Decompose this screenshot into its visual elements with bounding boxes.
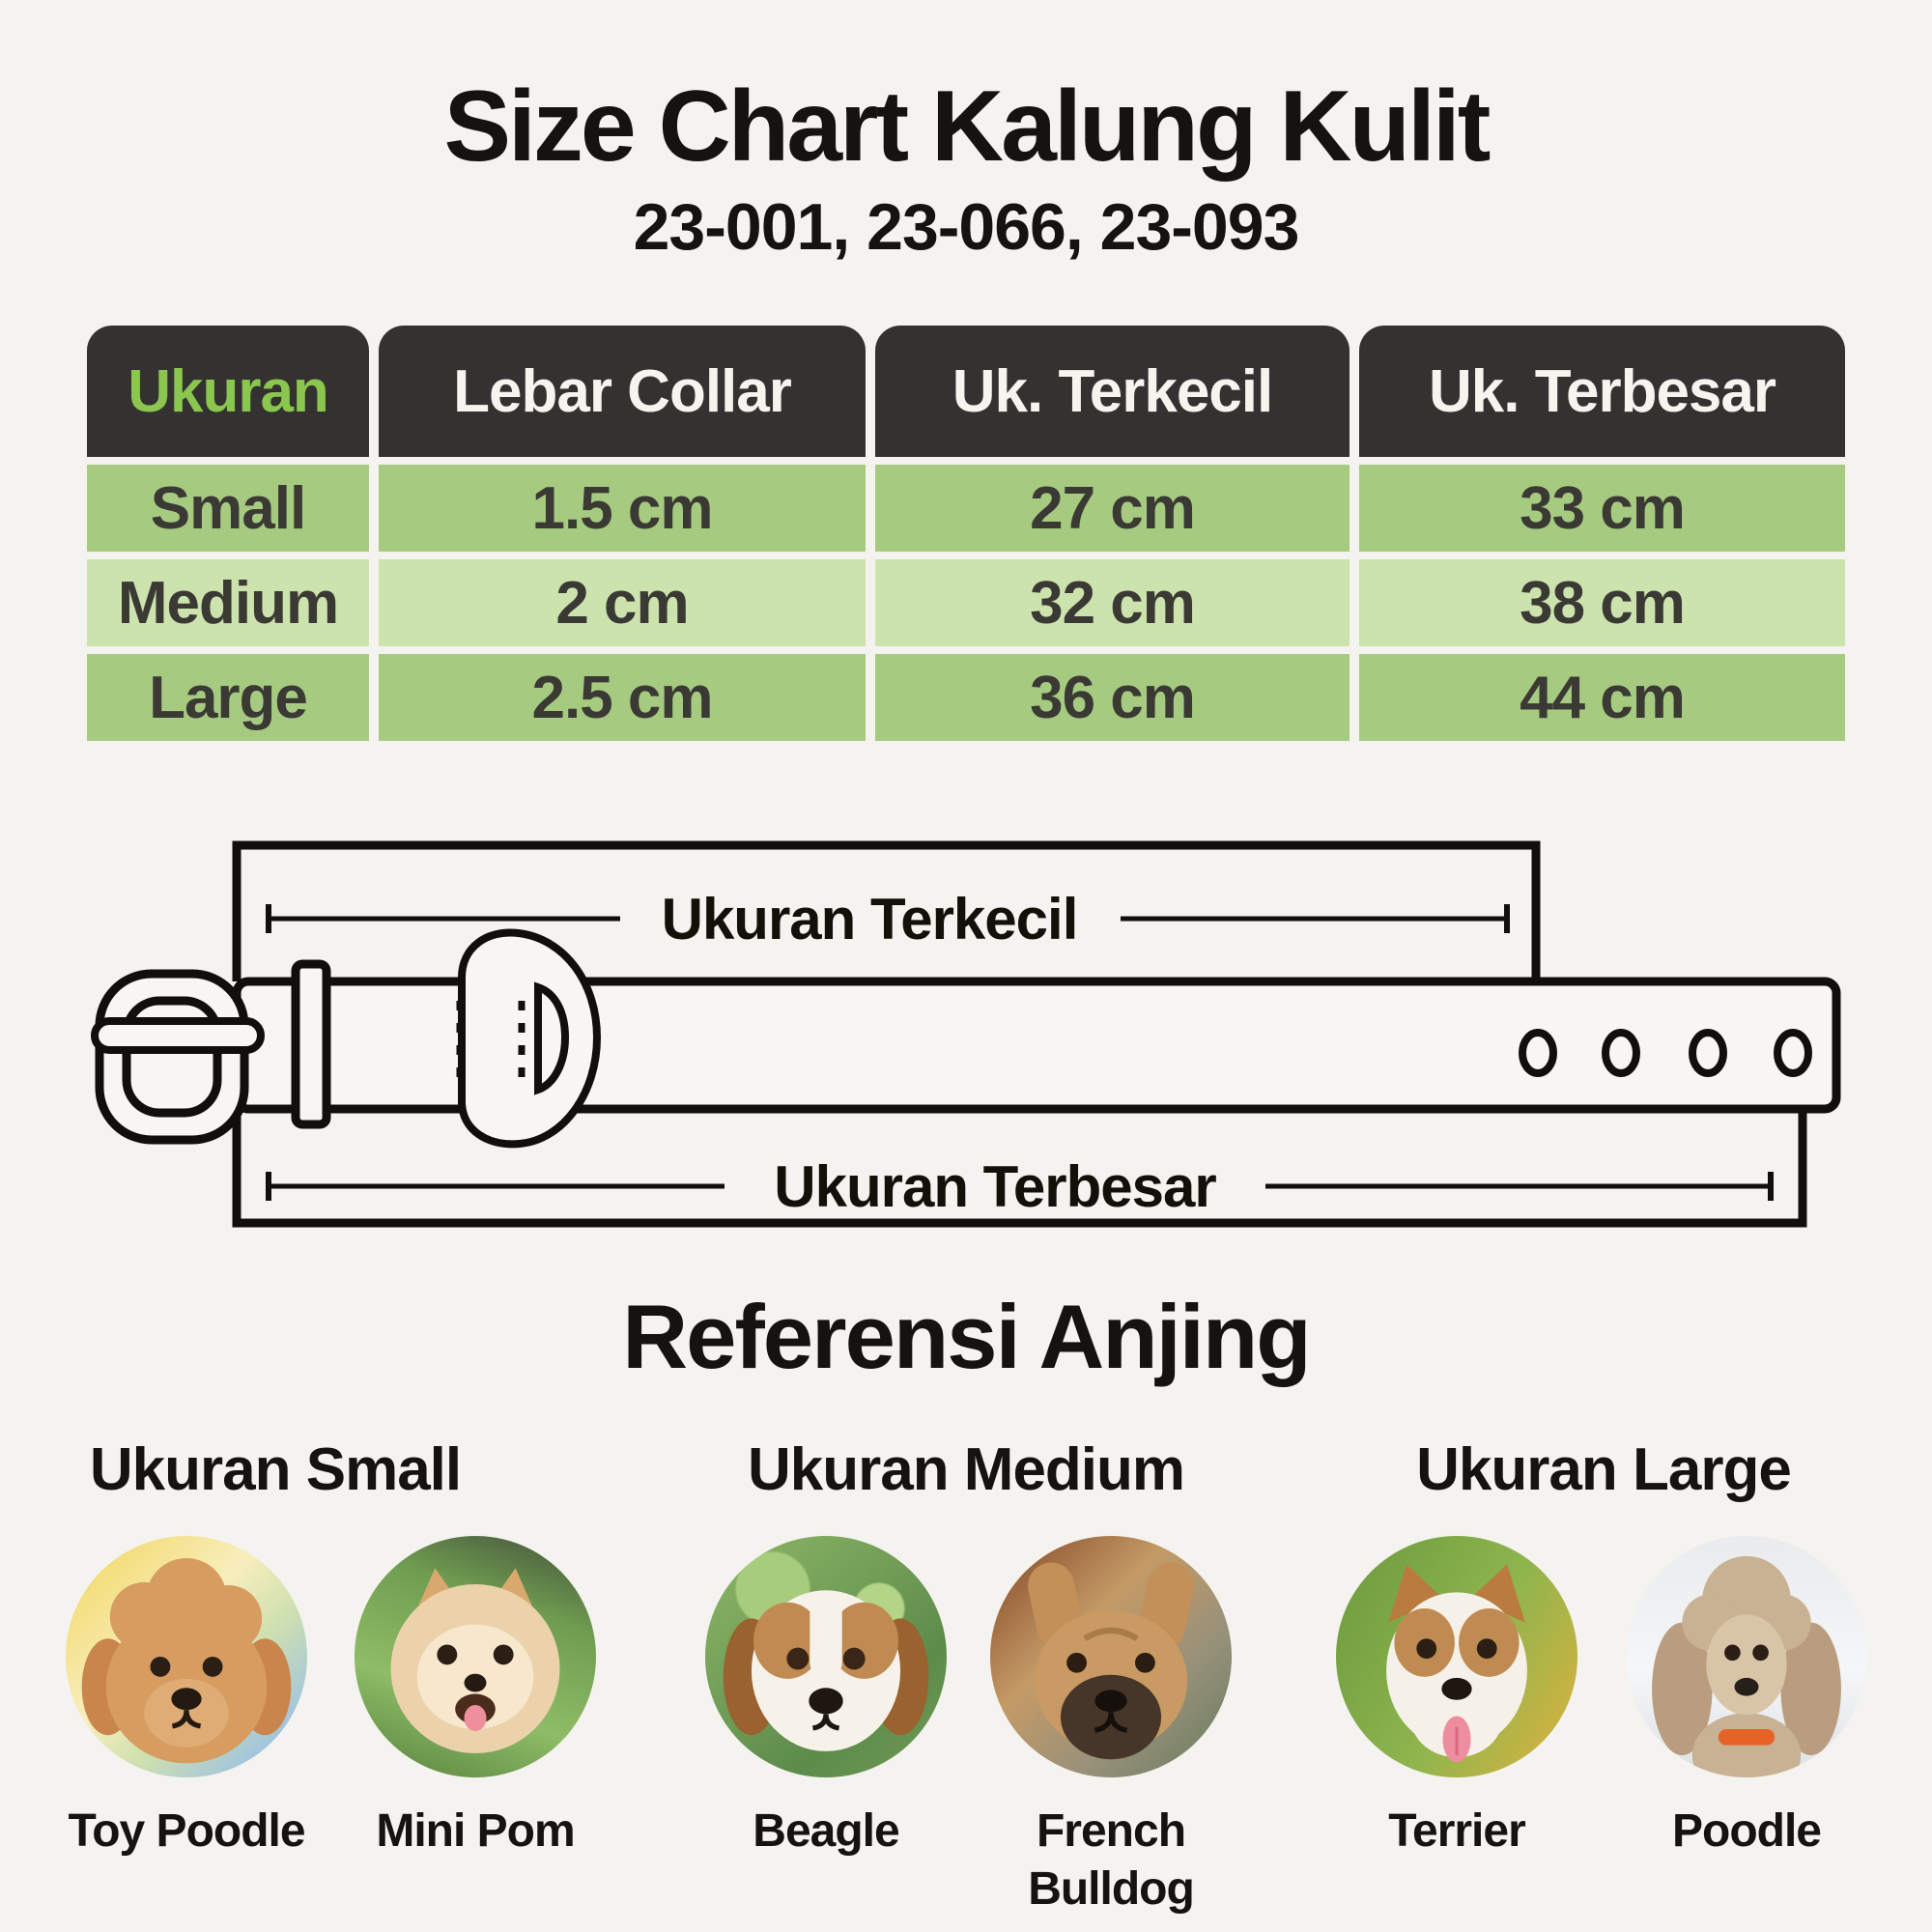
toy-poodle-illustration <box>66 1536 307 1777</box>
measure-smallest-label: Ukuran Terkecil <box>662 887 1078 952</box>
dog-label-french-bulldog: French Bulldog <box>995 1803 1227 1918</box>
cell-large-lebar: 2.5 cm <box>379 654 866 741</box>
measure-largest-label: Ukuran Terbesar <box>774 1154 1216 1219</box>
mini-pom-illustration <box>355 1536 596 1777</box>
cell-small-ukuran: Small <box>87 465 369 552</box>
buckle-prong <box>95 1021 261 1050</box>
group-label-medium: Ukuran Medium <box>628 1435 1304 1504</box>
french-bulldog-photo <box>990 1536 1232 1777</box>
column-header-uk-terbesar: Uk. Terbesar <box>1359 326 1845 457</box>
column-header-lebar-collar: Lebar Collar <box>379 326 866 457</box>
beagle-illustration <box>705 1536 947 1777</box>
collar-diagram: Ukuran Terkecil Ukuran Terbesar <box>0 811 1932 1256</box>
page-subtitle: 23-001, 23-066, 23-093 <box>0 189 1932 265</box>
group-label-small: Ukuran Small <box>0 1435 613 1504</box>
size-chart-infographic: Size Chart Kalung Kulit 23-001, 23-066, … <box>0 0 1932 1932</box>
cell-medium-lebar: 2 cm <box>379 559 866 646</box>
strap-keeper <box>296 964 327 1124</box>
cell-large-terbesar: 44 cm <box>1359 654 1845 741</box>
toy-poodle-photo <box>66 1536 307 1777</box>
terrier-illustration <box>1336 1536 1577 1777</box>
mini-pom-photo <box>355 1536 596 1777</box>
size-chart-table: Ukuran Lebar Collar Uk. Terkecil Uk. Ter… <box>87 326 1845 741</box>
buckle-icon <box>95 974 261 1140</box>
reference-title: Referensi Anjing <box>0 1285 1932 1389</box>
cell-medium-ukuran: Medium <box>87 559 369 646</box>
beagle-photo <box>705 1536 947 1777</box>
terrier-photo <box>1336 1536 1577 1777</box>
column-header-ukuran: Ukuran <box>87 326 369 457</box>
group-label-large: Ukuran Large <box>1265 1435 1932 1504</box>
dog-label-beagle: Beagle <box>652 1803 1000 1861</box>
cell-small-lebar: 1.5 cm <box>379 465 866 552</box>
cell-medium-terbesar: 38 cm <box>1359 559 1845 646</box>
poodle-illustration <box>1626 1536 1867 1777</box>
dog-label-mini-pom: Mini Pom <box>301 1803 649 1861</box>
french-bulldog-illustration <box>990 1536 1232 1777</box>
poodle-photo <box>1626 1536 1867 1777</box>
dog-label-poodle: Poodle <box>1573 1803 1920 1861</box>
cell-large-terkecil: 36 cm <box>875 654 1350 741</box>
cell-small-terbesar: 33 cm <box>1359 465 1845 552</box>
cell-large-ukuran: Large <box>87 654 369 741</box>
page-title: Size Chart Kalung Kulit <box>0 70 1932 185</box>
column-header-uk-terkecil: Uk. Terkecil <box>875 326 1350 457</box>
cell-small-terkecil: 27 cm <box>875 465 1350 552</box>
strap-d-loop <box>462 932 597 1144</box>
cell-medium-terkecil: 32 cm <box>875 559 1350 646</box>
